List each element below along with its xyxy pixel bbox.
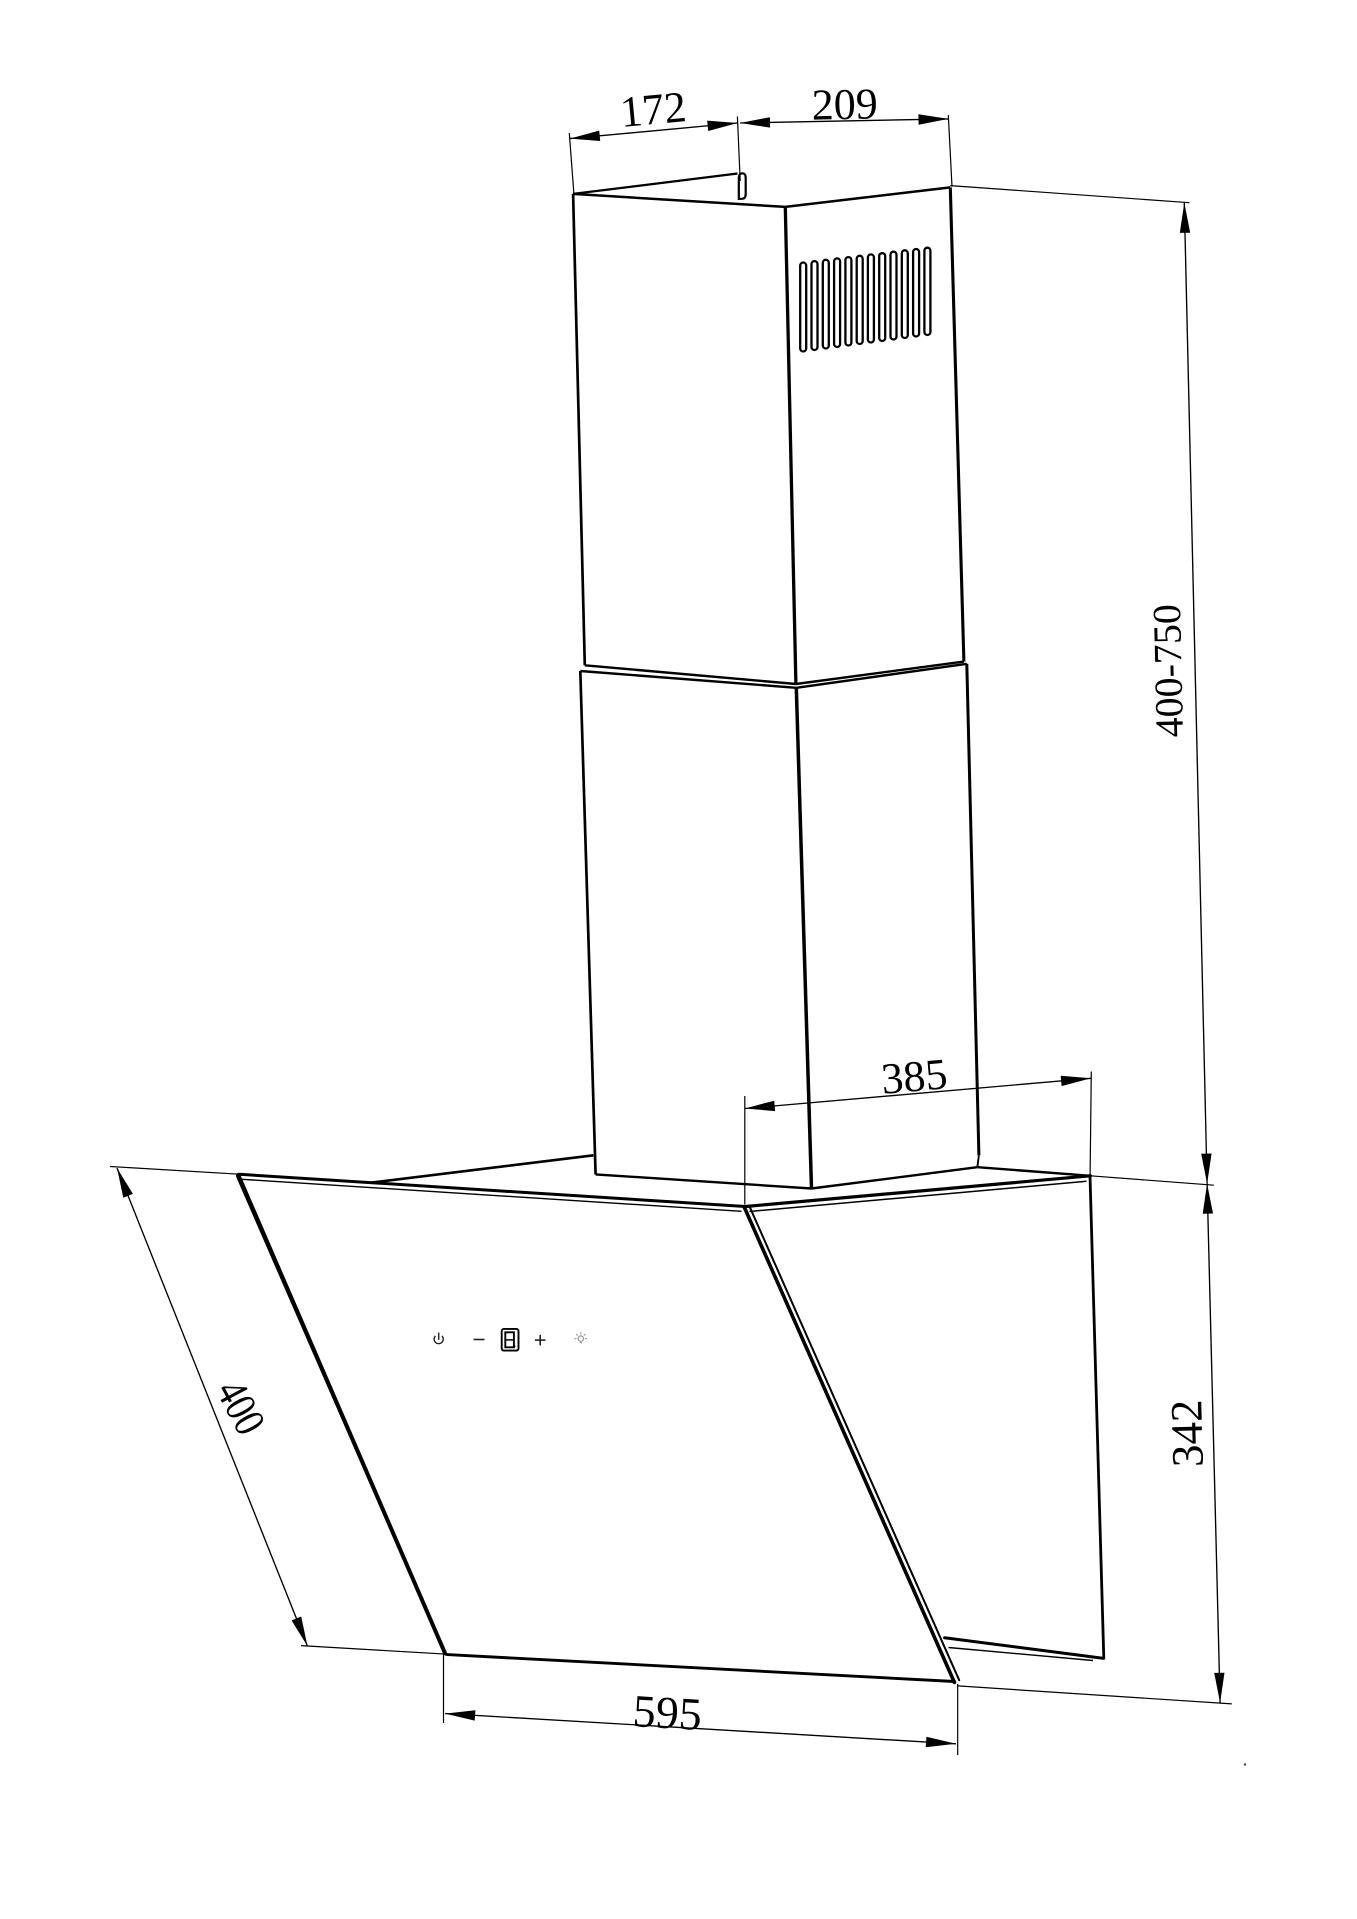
svg-text:385: 385	[879, 1049, 949, 1104]
svg-text:400-750: 400-750	[1144, 604, 1192, 738]
svg-text:172: 172	[618, 82, 688, 137]
svg-text:342: 342	[1161, 1399, 1213, 1468]
svg-text:595: 595	[631, 1685, 703, 1740]
svg-text:209: 209	[811, 79, 878, 129]
